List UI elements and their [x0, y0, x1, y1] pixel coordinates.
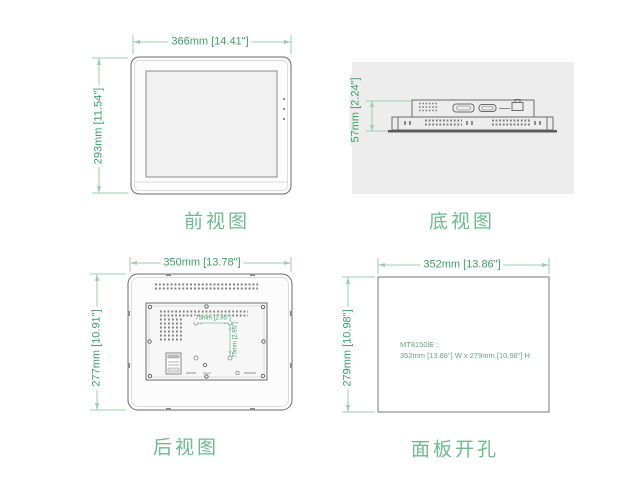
cutout-note: MT8150iE : 352mm [13.86"] W x 279mm [10.… — [400, 339, 530, 361]
vesa-width-dim: 75mm [2.95"] — [194, 316, 231, 323]
cutout-height-dim: 279mm [10.98"] — [342, 306, 355, 389]
rear-height-dim: 277mm [10.91"] — [91, 306, 104, 389]
cutout-view-label: 面板开孔 — [411, 435, 499, 462]
bottom-front-flange — [388, 130, 557, 133]
front-screen — [146, 71, 277, 177]
dimension-drawing-page: 366mm [14.41"] 293mm [11.54"] 前视图 — [0, 0, 640, 479]
bottom-view-drawing — [340, 55, 585, 200]
front-height-dim: 293mm [11.54"] — [93, 85, 106, 167]
bottom-view-backdrop — [352, 62, 574, 194]
rear-label-sticker — [166, 353, 181, 374]
cutout-width-dim: 352mm [13.86"] — [420, 259, 503, 272]
vesa-height-dim: 75mm [2.95"] — [233, 321, 240, 358]
front-view-drawing — [80, 25, 310, 210]
cutout-model: MT8150iE : — [400, 339, 530, 350]
rear-view-drawing — [78, 248, 308, 433]
cutout-size-text: 352mm [13.86"] W x 279mm [10.98"] H — [400, 350, 530, 361]
rear-width-dim: 350mm [13.78"] — [160, 257, 243, 270]
front-view-label: 前视图 — [184, 207, 250, 234]
bottom-view-label: 底视图 — [429, 207, 495, 234]
rear-view-label: 后视图 — [153, 433, 219, 460]
front-width-dim: 366mm [14.41"] — [168, 36, 251, 49]
bottom-height-dim: 57mm [2.24"] — [350, 74, 363, 145]
